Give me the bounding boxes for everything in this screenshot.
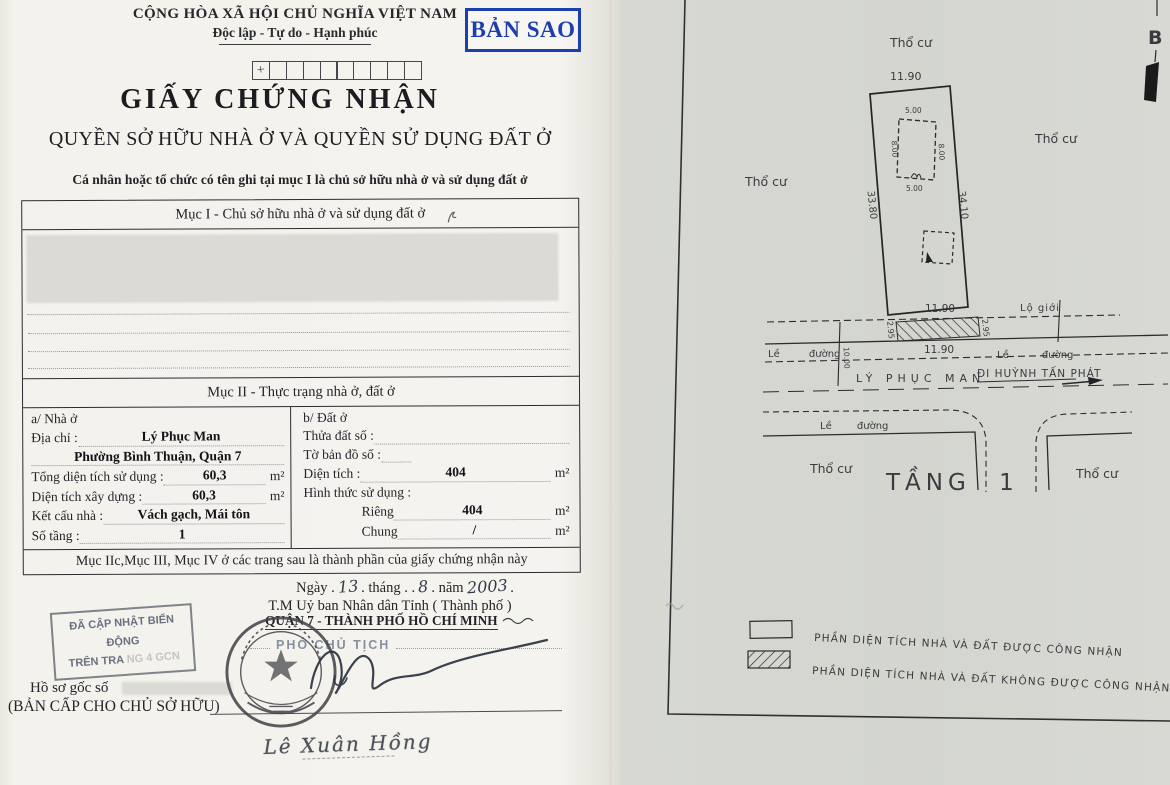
unit-m2: m² — [270, 467, 285, 485]
date-mid: . năm — [431, 580, 463, 596]
land-area-label: Diện tích : — [303, 465, 360, 483]
section-1-header: Mục I - Chủ sở hữu nhà ở và sử dụng đất … — [22, 199, 578, 230]
floors-value: 1 — [179, 526, 186, 541]
road-depth-label: 10.00 — [842, 347, 852, 369]
private-value: 404 — [462, 502, 482, 517]
serial-cell — [336, 61, 354, 80]
land-column-title: b/ Đất ở — [303, 409, 569, 426]
document-subtitle: QUYỀN SỞ HỮU NHÀ Ở VÀ QUYỀN SỬ DỤNG ĐẤT … — [0, 128, 600, 151]
north-arrow-line — [1155, 50, 1156, 62]
unit-m2: m² — [555, 464, 570, 482]
legend-label-not-recognized: PHẦN DIỆN TÍCH NHÀ VÀ ĐẤT KHÔNG ĐƯỢC CÔN… — [812, 663, 1170, 695]
floor-label: TẦNG 1 — [885, 466, 1019, 496]
handwritten-squiggle-icon — [501, 615, 535, 625]
road-width-label: 11.90 — [924, 344, 954, 356]
handwritten-plus: + — [255, 62, 267, 79]
copy-stamp: BẢN SAO — [465, 8, 581, 52]
issued-line: (BẢN CẤP CHO CHỦ SỞ HỮU) — [8, 698, 220, 716]
certificate-body-box: Mục I - Chủ sở hữu nhà ở và sử dụng đất … — [21, 198, 581, 576]
update-stamp: ĐÃ CẬP NHẬT BIẾN ĐỘNG TRÊN TRA NG 4 GCN — [50, 603, 196, 681]
handwritten-month: 8 — [417, 577, 428, 597]
handwritten-mark-icon — [444, 209, 458, 225]
total-area-label: Tổng diện tích sử dụng : — [31, 468, 163, 486]
plot-number-label: Thửa đất số : — [303, 427, 374, 445]
zone-label-bottom-left: Thổ cư — [809, 461, 853, 476]
serial-cell — [303, 61, 321, 80]
plot-number-row: Thửa đất số : — [303, 426, 569, 445]
house-footprint — [897, 119, 936, 180]
use-form-label: Hình thức sử dụng : — [303, 483, 411, 501]
serial-cell — [404, 61, 422, 80]
floors-row: Số tầng : 1 — [32, 525, 285, 545]
parcel-side-right: 34.10 — [956, 190, 970, 220]
faded-stamp-text: NG 4 GCN — [126, 650, 180, 666]
section-2-body: a/ Nhà ở Địa chỉ : Lý Phục Man Phường Bì… — [23, 406, 580, 550]
road-far-edge-dashed — [763, 384, 1168, 392]
national-motto: Độc lập - Tự do - Hạnh phúc — [95, 25, 495, 41]
shared-value: / — [472, 522, 476, 537]
house-column: a/ Nhà ở Địa chỉ : Lý Phục Man Phường Bì… — [23, 407, 292, 549]
components-note: Mục IIc,Mục III, Mục IV ở các trang sau … — [24, 547, 580, 574]
serial-cell — [387, 61, 405, 80]
parcel-frontage-bottom: 11.90 — [925, 303, 955, 315]
date-suffix: . — [510, 580, 514, 596]
serial-cell — [320, 61, 338, 80]
dossier-label: Hồ sơ gốc số — [30, 680, 108, 696]
owner-section-body — [22, 228, 579, 378]
site-plan-page: B Thổ cư Thổ cư Thổ cư 11.90 33.80 34.10… — [612, 0, 1170, 785]
map-sheet-label: Tờ bản đồ số : — [303, 445, 381, 463]
structure-label: Kết cấu nhà : — [32, 507, 104, 525]
house-notch — [911, 174, 921, 178]
zone-label-bottom-right: Thổ cư — [1075, 466, 1119, 481]
built-area-label: Diện tích xây dựng : — [31, 487, 142, 505]
intro-line: Cá nhân hoặc tổ chức có tên ghi tại mục … — [0, 172, 600, 188]
signature-icon — [295, 628, 565, 716]
address-label: Địa chỉ : — [31, 429, 78, 447]
parcel-frontage-top: 11.90 — [890, 70, 922, 83]
faint-scribble — [666, 604, 683, 609]
dotted-rule — [28, 331, 570, 334]
floors-label: Số tầng : — [32, 527, 80, 545]
handwritten-day: 13 — [337, 576, 359, 596]
legend-swatch-not-recognized — [748, 651, 790, 668]
section-1-title: Mục I - Chủ sở hữu nhà ở và sử dụng đất … — [175, 205, 425, 222]
signer-name: Lê Xuân Hồng — [243, 728, 454, 761]
national-header: CỘNG HÒA XÃ HỘI CHỦ NGHĨA VIỆT NAM Độc l… — [95, 6, 495, 45]
street-name: LÝ PHỤC MAN — [856, 372, 985, 385]
map-sheet-row: Tờ bản đồ số : — [303, 444, 569, 463]
parcel-side-left: 33.80 — [865, 190, 879, 220]
house-column-title: a/ Nhà ở — [31, 410, 284, 427]
unit-m2: m² — [270, 487, 285, 505]
land-area-value: 404 — [445, 464, 465, 479]
structure-value: Vách gạch, Mái tôn — [138, 506, 251, 521]
country-title: CỘNG HÒA XÃ HỘI CHỦ NGHĨA VIỆT NAM — [95, 6, 495, 23]
serial-number-boxes: + — [253, 61, 422, 80]
date-prefix: Ngày . — [296, 580, 335, 596]
serial-cell — [353, 61, 371, 80]
private-use-row: Riêng 404 m² — [304, 501, 570, 521]
use-form-row: Hình thức sử dụng : — [303, 482, 569, 501]
house-dim-top: 5.00 — [905, 106, 922, 115]
date-line: Ngày .13. tháng . .8. năm2003. — [250, 577, 560, 597]
block-corner-right — [1047, 433, 1132, 490]
address-row: Địa chỉ : Lý Phục Man — [31, 427, 284, 447]
direction-label: ĐI HUỲNH TẤN PHÁT — [977, 366, 1101, 380]
built-area-row: Diện tích xây dựng : 60,3 m² — [31, 486, 284, 506]
serial-cell: + — [252, 61, 270, 80]
certificate-page: CỘNG HÒA XÃ HỘI CHỦ NGHĨA VIỆT NAM Độc l… — [0, 0, 612, 785]
dotted-rule — [28, 366, 570, 369]
unit-m2: m² — [555, 502, 570, 520]
structure-notch — [926, 252, 933, 262]
total-area-row: Tổng diện tích sử dụng : 60,3 m² — [31, 466, 284, 486]
sidewalk-label-left: Lề đường — [768, 348, 840, 360]
private-label: Riêng — [362, 503, 394, 521]
north-arrow-icon — [1144, 62, 1159, 102]
north-label: B — [1148, 27, 1162, 49]
structure-row: Kết cấu nhà : Vách gạch, Mái tôn — [32, 505, 285, 525]
legend-swatch-recognized — [750, 621, 792, 639]
section-2-header: Mục II - Thực trạng nhà ở, đất ở — [23, 376, 579, 408]
legend-label-recognized: PHẦN DIỆN TÍCH NHÀ VÀ ĐẤT ĐƯỢC CÔNG NHẬN — [814, 630, 1124, 659]
land-area-row: Diện tích : 404 m² — [303, 463, 569, 483]
date-mid: . tháng . . — [361, 580, 415, 596]
document-title: GIẤY CHỨNG NHẬN — [35, 84, 525, 116]
house-dim-left: 8.00 — [890, 140, 900, 157]
scanned-document: CỘNG HÒA XÃ HỘI CHỦ NGHĨA VIỆT NAM Độc l… — [0, 0, 1170, 785]
handwritten-year: 2003 — [466, 576, 508, 598]
dossier-line: Hồ sơ gốc số — [30, 680, 232, 697]
serial-cell — [269, 61, 287, 80]
address-value: Lý Phục Man — [142, 428, 221, 443]
zone-label-right: Thổ cư — [1034, 131, 1078, 146]
redacted-owner-info — [26, 233, 558, 303]
serial-cell — [370, 61, 388, 80]
zone-label-left: Thổ cư — [744, 174, 788, 189]
blank-dotted — [381, 462, 411, 463]
land-column: b/ Đất ở Thửa đất số : Tờ bản đồ số : Di… — [291, 406, 580, 549]
motto-underline — [219, 44, 371, 45]
unit-m2: m² — [555, 522, 570, 540]
serial-cell — [286, 61, 304, 80]
redacted-number — [122, 682, 232, 695]
site-plan-drawing: B Thổ cư Thổ cư Thổ cư 11.90 33.80 34.10… — [612, 0, 1170, 785]
zone-label-top: Thổ cư — [889, 35, 933, 50]
setback-depth-left: 2.95 — [885, 321, 896, 340]
setback-hatched-area — [896, 317, 980, 341]
address-row-2: Phường Bình Thuận, Quận 7 — [31, 447, 284, 467]
sidewalk-label-lower: Lề đường — [820, 420, 888, 432]
address-value-2: Phường Bình Thuận, Quận 7 — [74, 448, 241, 464]
shared-use-row: Chung / m² — [304, 521, 570, 541]
built-area-value: 60,3 — [192, 487, 216, 502]
house-dim-right: 8.00 — [937, 143, 947, 160]
shared-label: Chung — [362, 522, 398, 540]
setback-label: Lộ giới — [1020, 302, 1060, 314]
setback-depth-right: 2.95 — [980, 319, 991, 338]
dotted-rule — [28, 349, 570, 352]
dotted-rule — [28, 312, 570, 315]
house-dim-bottom: 5.00 — [906, 184, 923, 193]
total-area-value: 60,3 — [203, 467, 227, 482]
